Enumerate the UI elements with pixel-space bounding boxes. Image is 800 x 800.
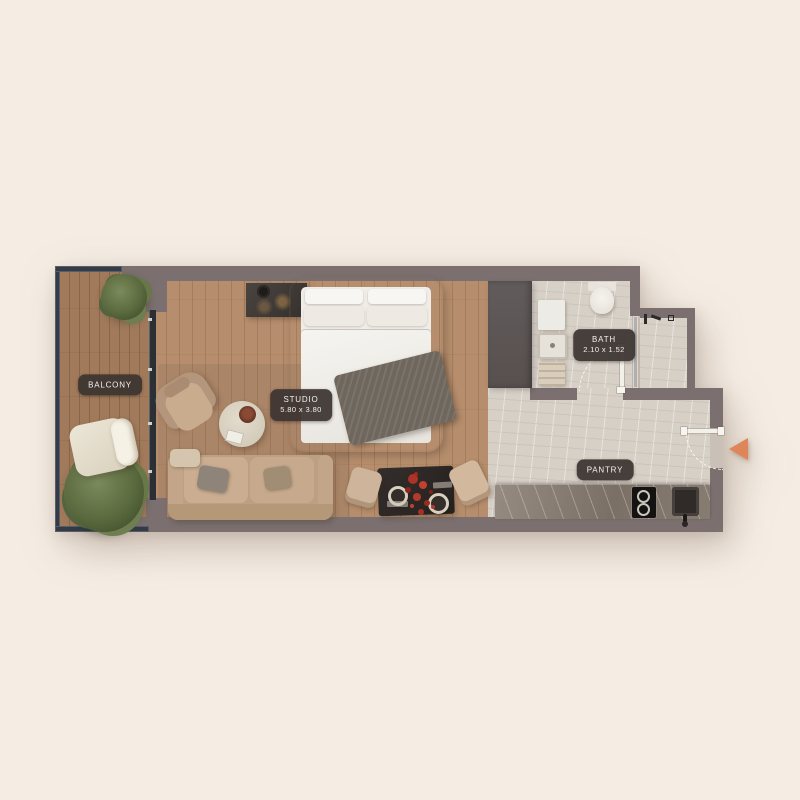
sofa-ottoman: [170, 449, 200, 467]
plate: [428, 493, 449, 514]
bed: [289, 277, 443, 452]
wall-right-lower: [710, 468, 723, 517]
flower-centerpiece: [408, 474, 418, 484]
bath-dims-text: 2.10 x 1.52: [583, 345, 625, 356]
toilet-bowl: [590, 287, 614, 314]
sofa-pillow: [196, 465, 230, 494]
table-runner: [433, 482, 452, 489]
sofa: [168, 455, 333, 520]
bed-pillow: [368, 289, 426, 304]
burner: [637, 490, 650, 503]
shower-fixtures: [644, 314, 684, 326]
coffee-table: [219, 401, 265, 447]
wall-bath-right-step: [630, 281, 640, 316]
wall-entry-top: [640, 388, 723, 400]
pantry-label-text: PANTRY: [587, 465, 624, 474]
vanity-cabinet: [538, 300, 565, 330]
sliding-door-handle: [148, 470, 152, 473]
entry-door-cap: [681, 427, 687, 435]
decor-book: [225, 429, 245, 445]
sofa-back: [168, 504, 333, 520]
floor-plan-canvas: BALCONY STUDIO 5.80 x 3.80 BATH 2.10 x 1…: [0, 0, 800, 800]
plant-top: [101, 274, 147, 320]
wall-right-upper: [710, 400, 723, 428]
balcony-label-text: BALCONY: [88, 380, 132, 389]
studio-dims-text: 5.80 x 3.80: [280, 405, 322, 416]
bath-vanity: [537, 300, 567, 386]
room-label-balcony: BALCONY: [78, 374, 142, 395]
room-label-pantry: PANTRY: [577, 459, 634, 480]
sofa-pillow: [263, 465, 292, 490]
toilet: [587, 282, 617, 314]
shower-control-icon: [668, 315, 674, 321]
faucet-dot: [682, 521, 688, 527]
bed-pillow: [305, 289, 363, 304]
bath-label-text: BATH: [592, 335, 616, 344]
shower-head-icon: [644, 314, 647, 324]
sliding-door-handle: [148, 422, 152, 425]
room-label-studio: STUDIO 5.80 x 3.80: [270, 389, 332, 421]
wall-shower-right: [687, 308, 695, 390]
wardrobe: [488, 281, 532, 388]
bed-pillow: [304, 306, 364, 326]
studio-label-text: STUDIO: [283, 395, 318, 404]
vanity-shelf-towels: [539, 362, 565, 386]
kitchen-sink: [672, 487, 699, 516]
wall-divider-top-pier: [146, 281, 167, 312]
wall-bath-bottom-right: [623, 388, 640, 400]
balcony-glass-top: [55, 266, 122, 272]
decor-bowl: [239, 406, 256, 423]
balcony-glass-left: [55, 266, 60, 532]
shower-floor: [640, 316, 687, 390]
table-runner: [387, 501, 408, 507]
sliding-door-handle: [148, 318, 152, 321]
faucet-dot: [550, 343, 555, 348]
room-label-bath: BATH 2.10 x 1.52: [573, 329, 635, 361]
vanity-sink: [538, 333, 567, 359]
shower-bar-icon: [651, 314, 661, 320]
floor-plan: BALCONY STUDIO 5.80 x 3.80 BATH 2.10 x 1…: [0, 0, 800, 800]
burner: [637, 503, 650, 516]
bath-door-cap: [617, 387, 625, 393]
bed-pillow: [367, 306, 427, 326]
wall-bath-bottom-left: [530, 388, 577, 400]
cooktop: [632, 487, 656, 518]
console-tray: [257, 285, 270, 298]
sliding-door-handle: [148, 368, 152, 371]
entrance-arrow-icon: [729, 438, 748, 460]
entry-door-cap: [718, 427, 724, 435]
